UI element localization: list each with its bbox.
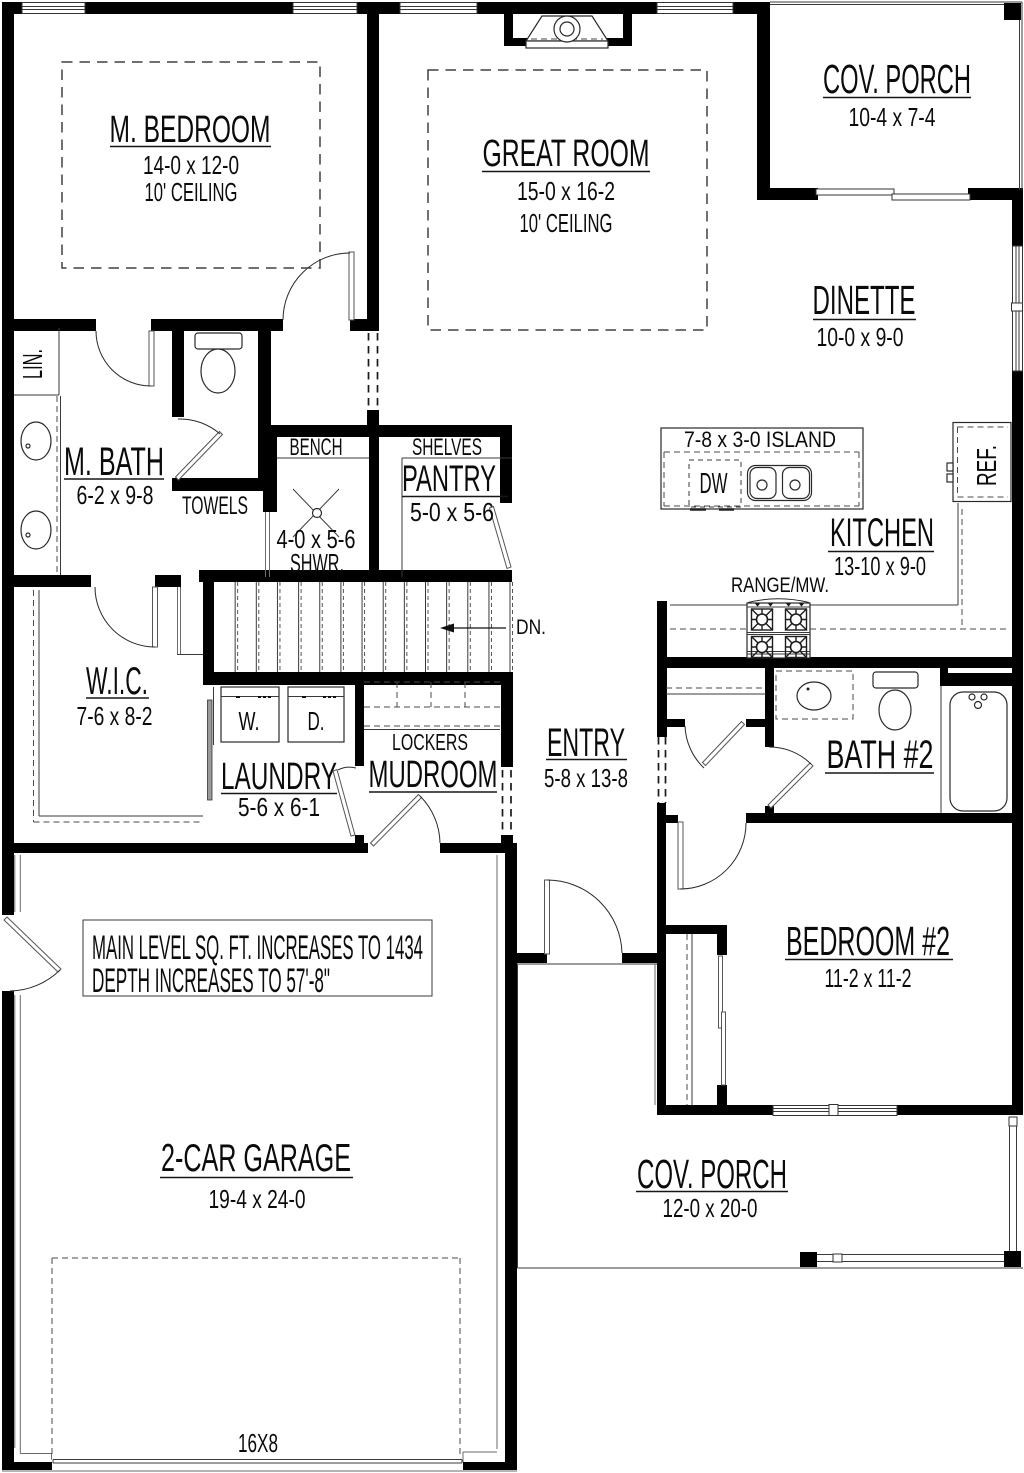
svg-text:12-0 x 20-0: 12-0 x 20-0 <box>663 1193 758 1223</box>
svg-text:M. BATH: M. BATH <box>64 440 164 484</box>
svg-text:DINETTE: DINETTE <box>813 277 916 323</box>
svg-text:DW: DW <box>700 468 728 500</box>
svg-text:SHWR.: SHWR. <box>290 548 344 578</box>
svg-text:RANGE/MW.: RANGE/MW. <box>731 574 829 597</box>
svg-text:PANTRY: PANTRY <box>402 458 496 499</box>
svg-text:W.: W. <box>239 706 260 736</box>
svg-text:7-6 x 8-2: 7-6 x 8-2 <box>77 701 153 731</box>
svg-text:10-0 x 9-0: 10-0 x 9-0 <box>817 322 904 352</box>
svg-text:10' CEILING: 10' CEILING <box>145 177 238 207</box>
svg-text:DN.: DN. <box>516 616 546 639</box>
svg-text:BENCH: BENCH <box>290 434 343 461</box>
svg-text:13-10 x 9-0: 13-10 x 9-0 <box>834 551 926 581</box>
svg-text:LOCKERS: LOCKERS <box>392 729 468 755</box>
svg-text:DEPTH INCREASES TO 57'-8": DEPTH INCREASES TO 57'-8" <box>92 962 330 1000</box>
svg-text:MUDROOM: MUDROOM <box>369 754 498 796</box>
svg-text:COV. PORCH: COV. PORCH <box>637 1151 787 1197</box>
svg-text:6-2 x 9-8: 6-2 x 9-8 <box>77 480 154 510</box>
svg-text:KITCHEN: KITCHEN <box>830 511 934 555</box>
svg-text:2-CAR GARAGE: 2-CAR GARAGE <box>161 1137 351 1180</box>
svg-text:SHELVES: SHELVES <box>412 434 482 461</box>
svg-text:16X8: 16X8 <box>238 1428 278 1458</box>
svg-text:REF.: REF. <box>971 445 1002 486</box>
svg-text:10' CEILING: 10' CEILING <box>520 208 613 238</box>
svg-text:TOWELS: TOWELS <box>182 492 248 520</box>
svg-text:7-8 x 3-0 ISLAND: 7-8 x 3-0 ISLAND <box>684 427 836 452</box>
svg-text:5-0 x 5-6: 5-0 x 5-6 <box>410 497 494 527</box>
svg-text:5-6 x 6-1: 5-6 x 6-1 <box>238 792 320 822</box>
svg-text:GREAT ROOM: GREAT ROOM <box>483 133 650 175</box>
svg-text:BEDROOM #2: BEDROOM #2 <box>786 918 950 964</box>
svg-text:5-8 x 13-8: 5-8 x 13-8 <box>544 763 628 793</box>
svg-text:LIN.: LIN. <box>17 349 48 379</box>
svg-text:BATH #2: BATH #2 <box>827 733 934 777</box>
svg-text:COV. PORCH: COV. PORCH <box>823 56 971 102</box>
svg-text:M. BEDROOM: M. BEDROOM <box>110 109 271 151</box>
svg-text:D.: D. <box>308 706 325 736</box>
svg-text:ENTRY: ENTRY <box>547 721 625 765</box>
svg-text:10-4 x 7-4: 10-4 x 7-4 <box>849 102 936 132</box>
svg-text:W.I.C.: W.I.C. <box>86 660 148 703</box>
svg-text:11-2 x 11-2: 11-2 x 11-2 <box>825 963 912 993</box>
svg-text:14-0 x 12-0: 14-0 x 12-0 <box>143 150 239 180</box>
svg-text:19-4 x 24-0: 19-4 x 24-0 <box>209 1184 306 1214</box>
svg-text:15-0 x 16-2: 15-0 x 16-2 <box>517 176 615 206</box>
